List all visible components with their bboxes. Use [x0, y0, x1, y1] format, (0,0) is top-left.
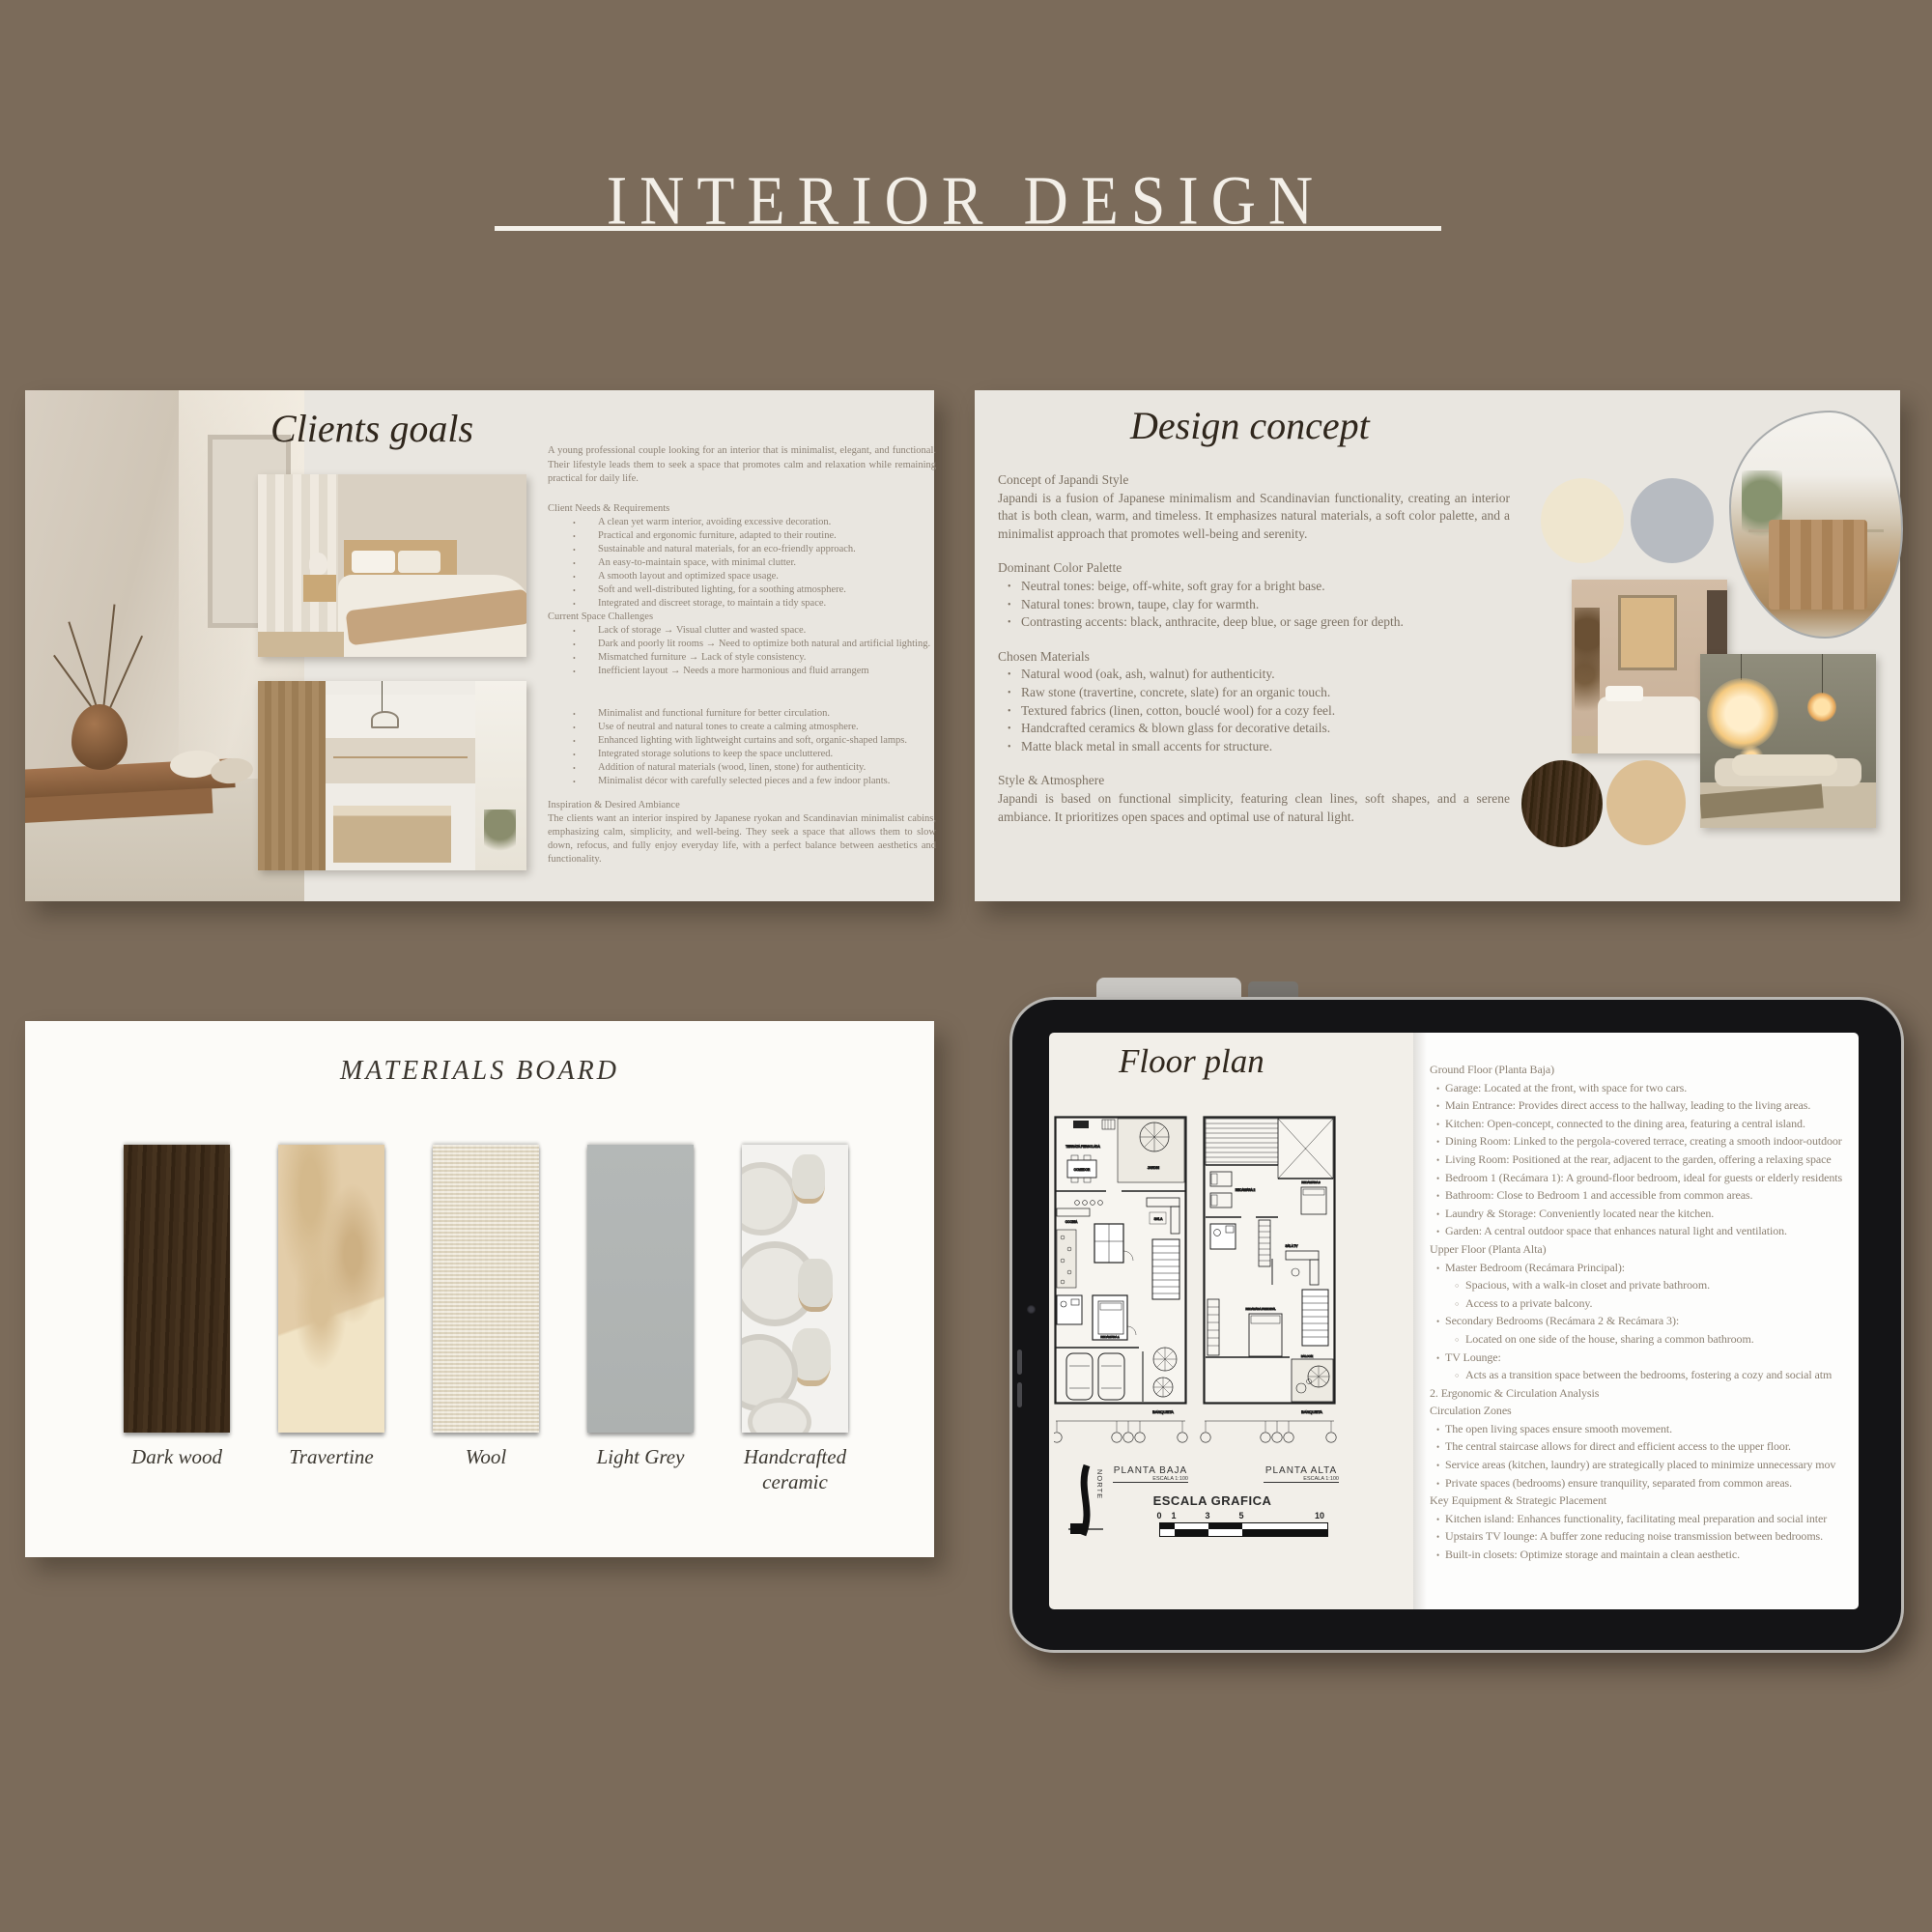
text-line: Style & Atmosphere: [998, 772, 1510, 790]
scale-segment: [1175, 1529, 1208, 1536]
text-line: Chosen Materials: [998, 648, 1510, 667]
bullet-marker: •: [1008, 597, 1011, 615]
ceramic-cup: [798, 1259, 833, 1312]
bullet-marker: •: [573, 735, 576, 749]
material-label: Wool: [409, 1444, 563, 1469]
bullet-marker: •: [573, 544, 576, 557]
kitchen-photo: [258, 681, 526, 870]
ceramic-cup: [792, 1154, 825, 1204]
dark-wood-swatch: [124, 1145, 230, 1433]
plan-label-text: PLANTA BAJA: [1114, 1465, 1187, 1476]
tablet-camera: [1027, 1305, 1036, 1314]
text-line: •Kitchen island: Enhances functionality,…: [1430, 1510, 1859, 1528]
bullet-marker: •: [573, 776, 576, 789]
material-label: Travertine: [254, 1444, 409, 1469]
bullet-marker: •: [1436, 1223, 1439, 1240]
text-line: •Secondary Bedrooms (Recámara 2 & Recáma…: [1430, 1312, 1859, 1330]
palette-swatch-grey: [1631, 478, 1714, 563]
text-line: Ground Floor (Planta Baja): [1430, 1061, 1859, 1079]
bullet-marker: ○: [1455, 1367, 1459, 1384]
bullet-marker: •: [1436, 1475, 1439, 1492]
palette-swatch-darkwood: [1521, 760, 1603, 847]
bullet-marker: •: [1008, 721, 1011, 739]
text-line: ○Acts as a transition space between the …: [1430, 1366, 1859, 1384]
palette-swatch-cream: [1541, 478, 1624, 563]
bullet-marker: •: [573, 749, 576, 762]
bullet-marker: •: [1436, 1170, 1439, 1187]
ceramic-swatch: [742, 1145, 848, 1433]
bullet-marker: •: [1008, 739, 1011, 757]
bullet-marker: •: [573, 571, 576, 584]
text-line: •Inefficient layout → Needs a more harmo…: [548, 665, 936, 678]
floor: [1572, 736, 1600, 753]
scale-tick: 3: [1200, 1511, 1215, 1520]
text-line: •Upstairs TV lounge: A buffer zone reduc…: [1430, 1527, 1859, 1546]
text-line: •Integrated and discreet storage, to mai…: [548, 597, 936, 611]
bullet-marker: ○: [1455, 1277, 1459, 1294]
bed: [1598, 696, 1700, 753]
text-line: •Main Entrance: Provides direct access t…: [1430, 1096, 1859, 1115]
branch-decor: [102, 604, 115, 710]
bullet-marker: •: [1008, 667, 1011, 685]
material-label: Dark wood: [99, 1444, 254, 1469]
floor-plan-notes: Ground Floor (Planta Baja)•Garage: Locat…: [1430, 1061, 1859, 1564]
text-line: •Private spaces (bedrooms) ensure tranqu…: [1430, 1474, 1859, 1492]
text-line: •Garden: A central outdoor space that en…: [1430, 1222, 1859, 1240]
floor-plan-page: Floor plan: [1049, 1033, 1413, 1609]
wood-cabinet: [258, 681, 326, 870]
bullet-marker: •: [573, 666, 576, 679]
pendant-cord: [1822, 654, 1823, 694]
scale-note: ESCALA 1:100: [1264, 1476, 1339, 1482]
room-label: RECAMARA 1: [1100, 1335, 1120, 1339]
text-line: •The open living spaces ensure smooth mo…: [1430, 1420, 1859, 1438]
inspiration-heading: Inspiration & Desired Ambiance: [548, 799, 936, 812]
bullet-marker: •: [573, 625, 576, 639]
design-concept-slide: Design concept Concept of Japandi StyleJ…: [975, 390, 1900, 901]
bullet-marker: •: [1436, 1260, 1439, 1277]
graphic-scale-bar: [1159, 1522, 1328, 1537]
bullet-marker: •: [1008, 703, 1011, 722]
text-line: Japandi is based on functional simplicit…: [998, 790, 1510, 826]
text-line: •TV Lounge:: [1430, 1349, 1859, 1367]
bullet-marker: •: [573, 762, 576, 776]
text-line: •Matte black metal in small accents for …: [998, 738, 1510, 756]
room-label: SALA TV: [1286, 1244, 1299, 1248]
floor-plan-drawing: TERRAZA PERGOLADA JARDIN COMEDOR COCINA …: [1054, 1116, 1344, 1454]
pillow: [1605, 686, 1643, 701]
text-line: •Use of neutral and natural tones to cre…: [548, 721, 936, 734]
text-line: •An easy-to-maintain space, with minimal…: [548, 556, 936, 570]
travertine-swatch: [278, 1145, 384, 1433]
kitchen-mirror-photo: [1729, 411, 1903, 639]
text-line: •Dining Room: Linked to the pergola-cove…: [1430, 1132, 1859, 1151]
room-label: SALA: [1154, 1217, 1163, 1221]
text-line: Circulation Zones: [1430, 1402, 1859, 1420]
text-line: ○Spacious, with a walk-in closet and pri…: [1430, 1276, 1859, 1294]
ceramic-plate: [742, 1162, 798, 1236]
bullet-marker: •: [1436, 1187, 1439, 1205]
scale-tick: 10: [1312, 1511, 1327, 1520]
scale-segment: [1208, 1523, 1242, 1529]
room-label: BALCON: [1301, 1354, 1313, 1358]
material-travertine: Travertine: [278, 1145, 384, 1433]
wood-cabinet: [1769, 520, 1867, 610]
text-line: •Natural wood (oak, ash, walnut) for aut…: [998, 666, 1510, 684]
text-line: •Built-in closets: Optimize storage and …: [1430, 1546, 1859, 1564]
bullet-marker: •: [573, 557, 576, 571]
bullet-marker: •: [573, 530, 576, 544]
room-label: COMEDOR: [1074, 1168, 1091, 1172]
plan-label-text: PLANTA ALTA: [1265, 1465, 1337, 1476]
materials-board-heading: MATERIALS BOARD: [25, 1056, 934, 1087]
text-line: •Minimalist and functional furniture for…: [548, 707, 936, 721]
ground-floor-plan: TERRAZA PERGOLADA JARDIN COMEDOR COCINA …: [1054, 1118, 1187, 1443]
bullet-marker: •: [573, 652, 576, 666]
text-line: ○Access to a private balcony.: [1430, 1294, 1859, 1313]
material-light-grey: Light Grey: [587, 1145, 694, 1433]
bullet-marker: •: [1436, 1133, 1439, 1151]
text-line: •Kitchen: Open-concept, connected to the…: [1430, 1115, 1859, 1133]
scale-segment: [1242, 1529, 1327, 1536]
ground-plan-label: PLANTA BAJA ESCALA 1:100: [1113, 1465, 1188, 1483]
text-line: Dominant Color Palette: [998, 559, 1510, 578]
text-line: •Integrated storage solutions to keep th…: [548, 748, 936, 761]
text-line: Concept of Japandi Style: [998, 471, 1510, 490]
ceramic-cup: [792, 1328, 831, 1386]
improvements-list: •Minimalist and functional furniture for…: [548, 707, 936, 788]
backsplash: [326, 738, 476, 783]
light-grey-swatch: [587, 1145, 694, 1433]
clients-goals-text-column: A young professional couple looking for …: [548, 444, 936, 867]
needs-and-challenges-list: Client Needs & Requirements•A clean yet …: [548, 502, 936, 678]
design-concept-heading: Design concept: [1130, 403, 1370, 448]
floor-plan-notes-page: Ground Floor (Planta Baja)•Garage: Locat…: [1413, 1033, 1859, 1609]
bullet-marker: •: [573, 517, 576, 530]
text-line: •Minimalist décor with carefully selecte…: [548, 775, 936, 788]
material-label: Light Grey: [563, 1444, 718, 1469]
text-line: •Bathroom: Close to Bedroom 1 and access…: [1430, 1186, 1859, 1205]
screenshot-root: { "page": { "title": "INTERIOR DESIGN", …: [0, 0, 1932, 1932]
sidewalk-label: BANQUETA: [1152, 1409, 1174, 1414]
vase: [309, 553, 327, 575]
plant: [484, 810, 516, 859]
bullet-marker: •: [573, 598, 576, 611]
room-label: JARDIN: [1148, 1166, 1160, 1170]
text-line: •Textured fabrics (linen, cotton, bouclé…: [998, 702, 1510, 721]
tablet-volume-button: [1017, 1382, 1022, 1407]
bullet-marker: •: [573, 584, 576, 598]
tablet-screen: Floor plan: [1049, 1033, 1859, 1609]
bullet-marker: •: [1436, 1151, 1439, 1169]
room-label: RECAMARA PRINCIPAL: [1245, 1307, 1275, 1311]
pendant-cord: [382, 681, 383, 713]
scale-tick: 1: [1166, 1511, 1181, 1520]
text-line: Japandi is a fusion of Japanese minimali…: [998, 490, 1510, 544]
room-label: COCINA: [1065, 1220, 1078, 1224]
bullet-marker: •: [1436, 1547, 1439, 1564]
pendant-lamp: [371, 711, 399, 728]
material-label: Handcrafted ceramic: [718, 1444, 872, 1494]
scale-tick: 5: [1234, 1511, 1249, 1520]
text-line: •Contrasting accents: black, anthracite,…: [998, 613, 1510, 632]
bullet-marker: •: [1436, 1350, 1439, 1367]
paper-lantern: [1707, 678, 1778, 750]
bullet-marker: •: [1436, 1080, 1439, 1097]
text-line: ○Located on one side of the house, shari…: [1430, 1330, 1859, 1349]
upper-cabinets: [326, 695, 476, 740]
bullet-marker: •: [1008, 614, 1011, 633]
bullet-marker: •: [1008, 685, 1011, 703]
text-line: •Master Bedroom (Recámara Principal):: [1430, 1259, 1859, 1277]
text-line: •A clean yet warm interior, avoiding exc…: [548, 516, 936, 529]
tablet-volume-button: [1017, 1350, 1022, 1375]
graphic-scale-title: ESCALA GRAFICA: [1140, 1493, 1285, 1508]
text-line: •Dark and poorly lit rooms → Need to opt…: [548, 638, 936, 651]
bullet-marker: •: [573, 708, 576, 722]
text-line: Current Space Challenges: [548, 611, 936, 624]
text-line: •Service areas (kitchen, laundry) are st…: [1430, 1456, 1859, 1474]
text-line: •Bedroom 1 (Recámara 1): A ground-floor …: [1430, 1169, 1859, 1187]
bullet-marker: •: [1436, 1116, 1439, 1133]
pendant-cord: [1741, 654, 1742, 680]
text-line: •Mismatched furniture → Lack of style co…: [548, 651, 936, 665]
text-line: •Soft and well-distributed lighting, for…: [548, 583, 936, 597]
upper-floor-plan: RECAMARA 2 RECAMARA 3 SALA TV RECAMARA P…: [1201, 1118, 1336, 1443]
bullet-marker: •: [1436, 1438, 1439, 1456]
inspiration-paragraph: The clients want an interior inspired by…: [548, 812, 936, 867]
bedroom-photo-2: [1700, 654, 1876, 828]
nightstand: [303, 575, 335, 602]
text-line: •Handcrafted ceramics & blown glass for …: [998, 720, 1510, 738]
pillow: [398, 551, 440, 573]
text-line: •The central staircase allows for direct…: [1430, 1437, 1859, 1456]
bullet-marker: •: [1436, 1528, 1439, 1546]
branch-decor: [108, 636, 143, 711]
text-line: •Natural tones: brown, taupe, clay for w…: [998, 596, 1510, 614]
bullet-marker: •: [1436, 1206, 1439, 1223]
scale-tick: 0: [1151, 1511, 1167, 1520]
north-label: NORTE: [1095, 1469, 1104, 1499]
text-line: Upper Floor (Planta Alta): [1430, 1240, 1859, 1259]
upper-plan-label: PLANTA ALTA ESCALA 1:100: [1264, 1465, 1339, 1483]
text-line: •A smooth layout and optimized space usa…: [548, 570, 936, 583]
text-line: •Garage: Located at the front, with spac…: [1430, 1079, 1859, 1097]
clients-goals-slide: Clients goals A young professional coupl…: [25, 390, 934, 901]
bullet-marker: •: [1436, 1313, 1439, 1330]
plant: [1575, 608, 1600, 719]
text-line: •Living Room: Positioned at the rear, ad…: [1430, 1151, 1859, 1169]
palette-swatch-tan: [1606, 760, 1686, 845]
floor-plan-heading: Floor plan: [1119, 1042, 1264, 1081]
sidewalk-label: BANQUETA: [1301, 1409, 1322, 1414]
text-line: 2. Ergonomic & Circulation Analysis: [1430, 1384, 1859, 1403]
clay-vase: [71, 704, 128, 770]
text-line: •Practical and ergonomic furniture, adap…: [548, 529, 936, 543]
material-dark-wood: Dark wood: [124, 1145, 230, 1433]
text-line: •Enhanced lighting with lightweight curt…: [548, 734, 936, 748]
pillow: [1732, 754, 1837, 776]
bullet-marker: •: [1436, 1457, 1439, 1474]
bullet-marker: •: [573, 639, 576, 652]
text-line: •Lack of storage → Visual clutter and wa…: [548, 624, 936, 638]
room-label: TERRAZA PERGOLADA: [1065, 1145, 1100, 1149]
bullet-marker: •: [1436, 1421, 1439, 1438]
text-line: •Sustainable and natural materials, for …: [548, 543, 936, 556]
text-line: Key Equipment & Strategic Placement: [1430, 1492, 1859, 1510]
bullet-marker: •: [573, 722, 576, 735]
bullet-marker: •: [1436, 1097, 1439, 1115]
text-line: •Laundry & Storage: Conveniently located…: [1430, 1205, 1859, 1223]
wool-swatch: [433, 1145, 539, 1433]
bedroom-photo: [258, 474, 526, 657]
title-underline-rule: [495, 226, 1441, 231]
material-ceramic: Handcrafted ceramic: [742, 1145, 848, 1433]
room-label: RECAMARA 3: [1301, 1180, 1321, 1184]
clients-goals-heading: Clients goals: [270, 406, 473, 451]
wall-art: [1618, 595, 1677, 670]
text-line: •Neutral tones: beige, off-white, soft g…: [998, 578, 1510, 596]
design-concept-text-column: Concept of Japandi StyleJapandi is a fus…: [998, 471, 1510, 826]
pendant-lamp: [1807, 693, 1836, 722]
material-wool: Wool: [433, 1145, 539, 1433]
bullet-marker: •: [1008, 579, 1011, 597]
scale-segment: [1160, 1523, 1175, 1529]
text-line: Client Needs & Requirements: [548, 502, 936, 516]
room-label: RECAMARA 2: [1236, 1188, 1256, 1192]
tablet: Floor plan: [1009, 997, 1904, 1653]
bullet-marker: •: [1436, 1511, 1439, 1528]
intro-paragraph: A young professional couple looking for …: [548, 444, 936, 487]
shelf: [333, 756, 468, 758]
bullet-marker: ○: [1455, 1295, 1459, 1313]
text-line: •Raw stone (travertine, concrete, slate)…: [998, 684, 1510, 702]
bullet-marker: ○: [1455, 1331, 1459, 1349]
kitchen-island: [333, 806, 451, 863]
text-line: •Addition of natural materials (wood, li…: [548, 761, 936, 775]
materials-board-slide: MATERIALS BOARD Dark wood Travertine Woo…: [25, 1021, 934, 1557]
floor: [258, 632, 344, 657]
scale-note: ESCALA 1:100: [1113, 1476, 1188, 1482]
pillow: [352, 551, 394, 573]
